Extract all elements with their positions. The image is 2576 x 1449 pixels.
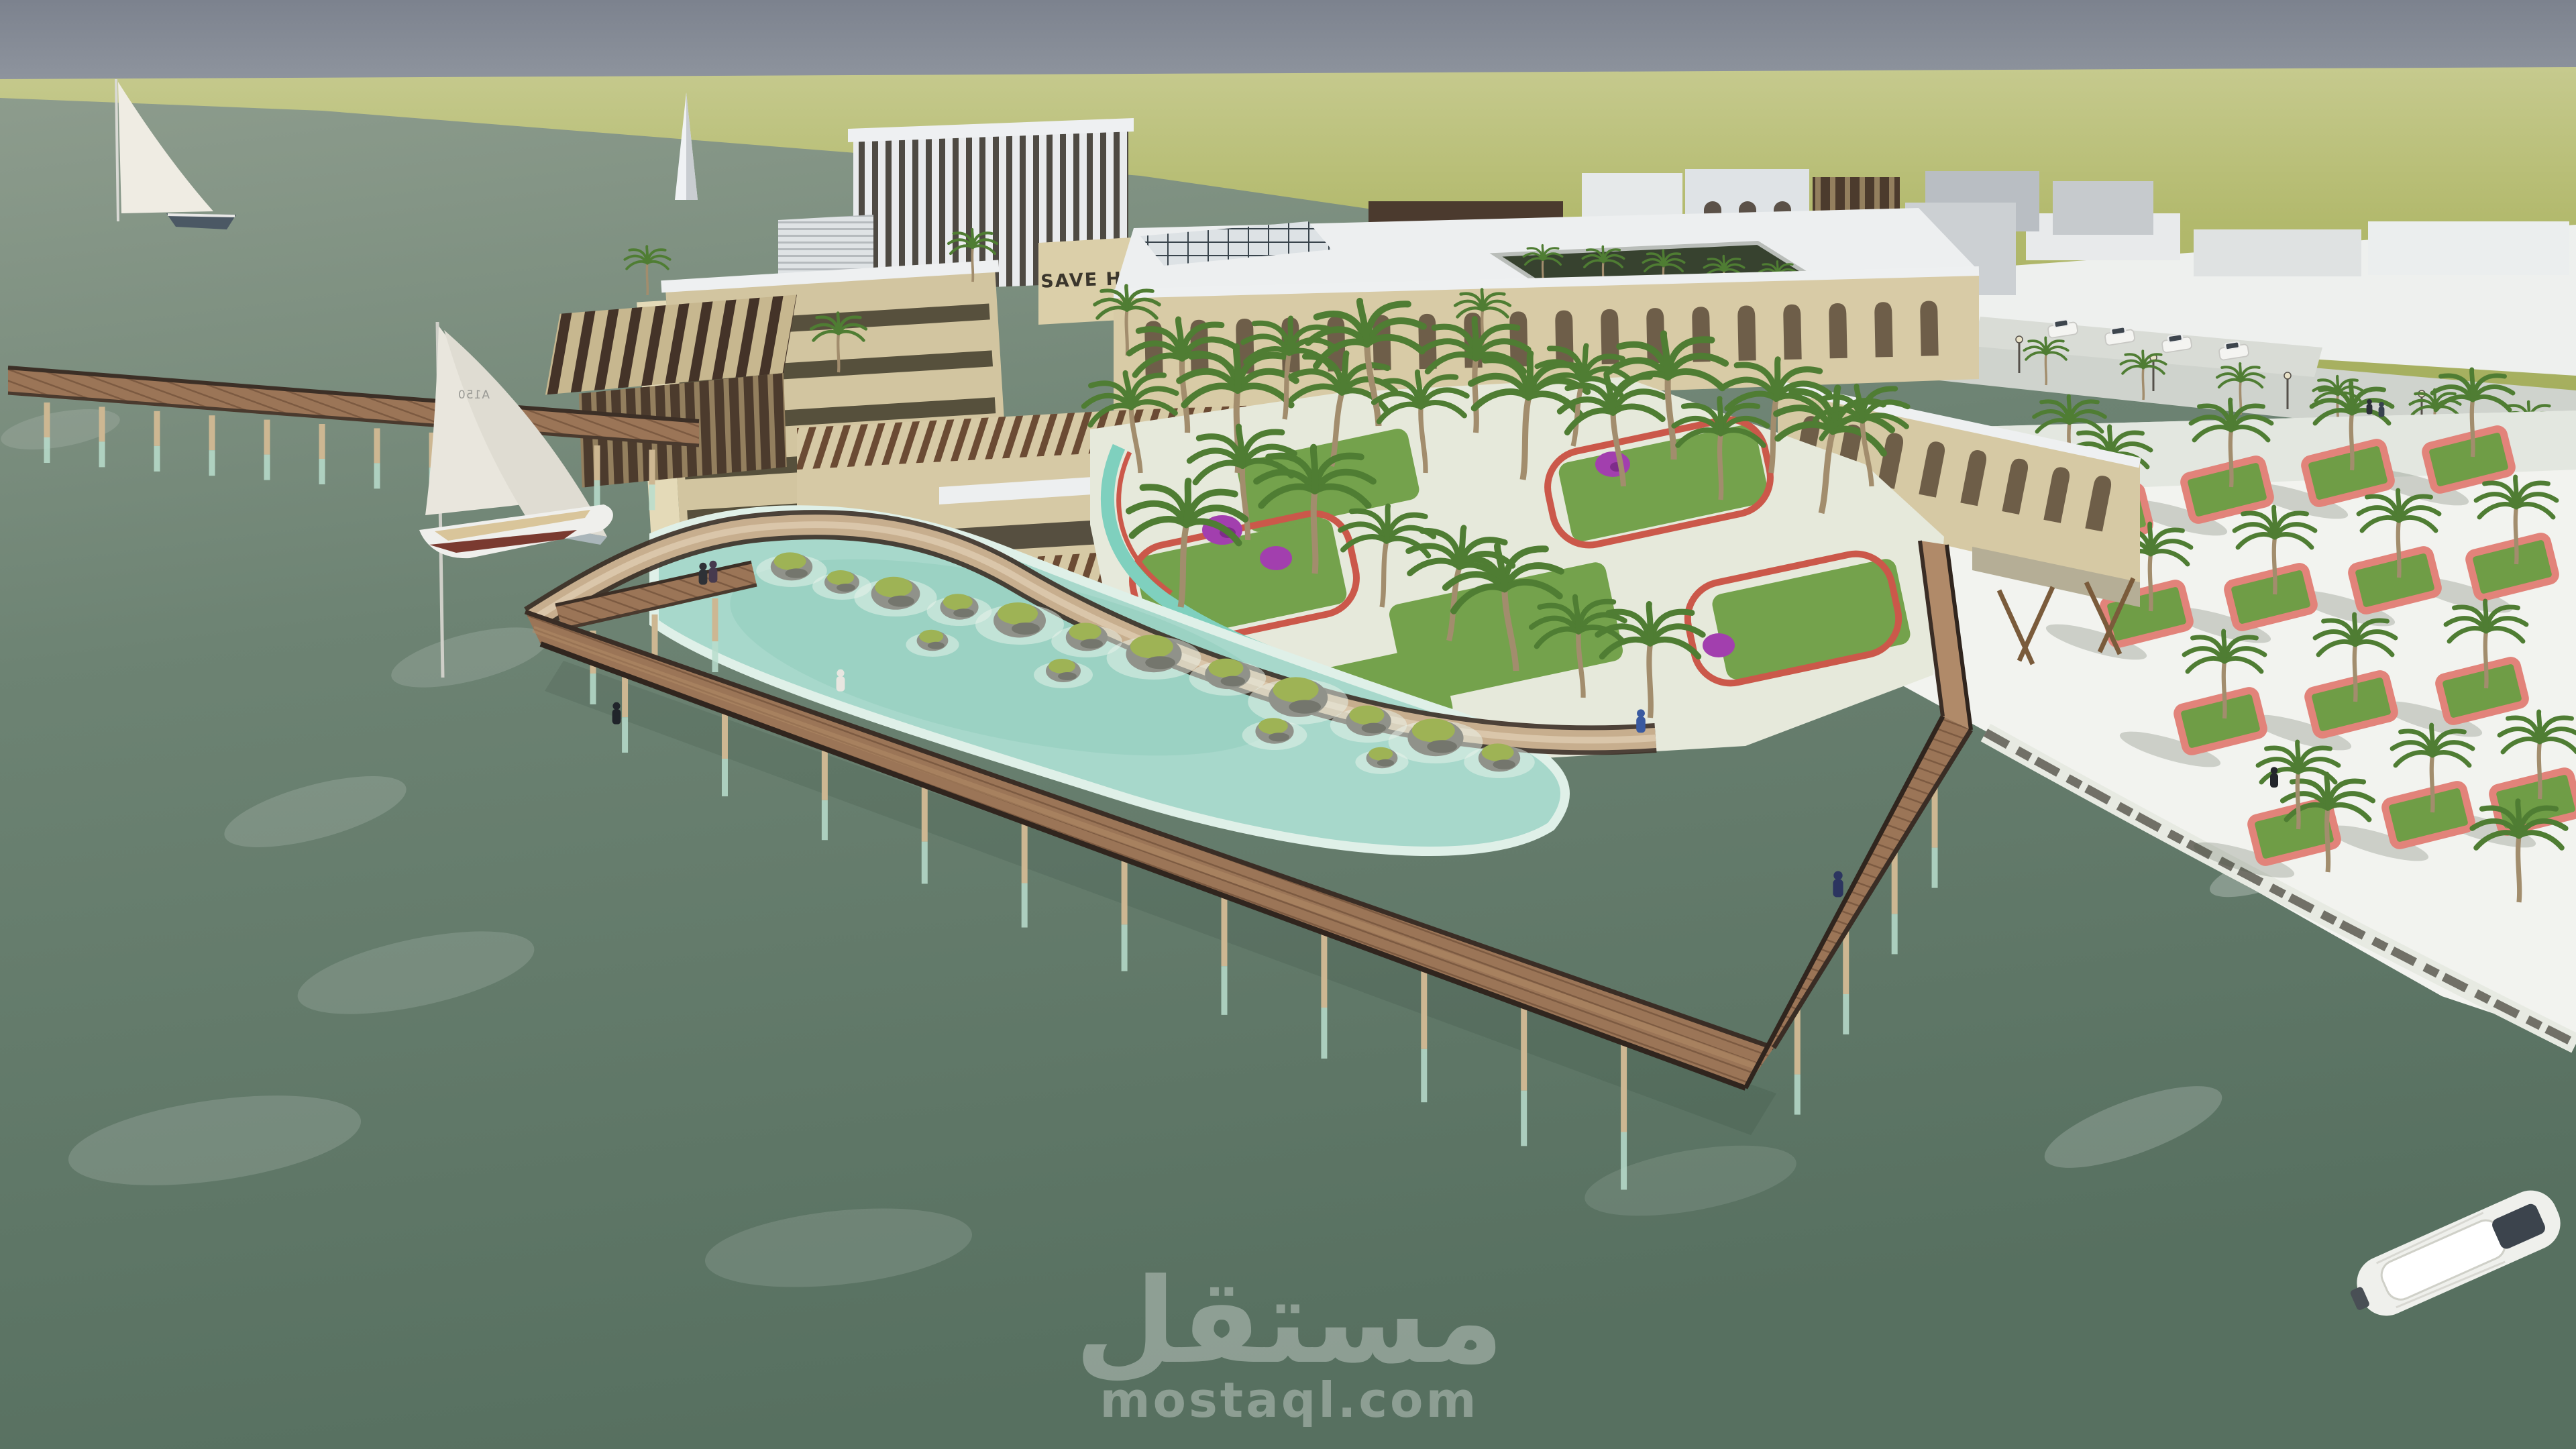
pier-post-underwater xyxy=(264,455,270,480)
pier-post xyxy=(1321,934,1327,1008)
pier-post-underwater xyxy=(209,450,215,476)
pedestrian xyxy=(2270,767,2278,788)
watermark: مستقل mostaql.com xyxy=(1075,1254,1504,1428)
render-viewport: SAVE HERITAGE xyxy=(0,0,2576,1449)
pier-post xyxy=(712,598,718,641)
pier-post-underwater xyxy=(1932,848,1938,888)
pier-post-underwater xyxy=(319,459,325,484)
pier-post-underwater xyxy=(649,484,655,510)
pier-post-underwater xyxy=(374,463,380,488)
pier-post xyxy=(319,424,325,459)
pier-post-underwater xyxy=(1221,966,1227,1015)
pier-post-underwater xyxy=(590,674,596,704)
pier-post-underwater xyxy=(99,441,105,467)
pier-post-underwater xyxy=(622,717,628,753)
pier-post xyxy=(1022,823,1028,883)
watermark-domain: mostaql.com xyxy=(1099,1372,1479,1428)
pier-post xyxy=(264,420,270,455)
pier-post-underwater xyxy=(722,759,728,796)
pier-post-underwater xyxy=(1892,914,1898,954)
pedestrian xyxy=(709,561,718,583)
pedestrian xyxy=(1636,709,1646,733)
pedestrian xyxy=(612,702,621,724)
pier-post-underwater xyxy=(1621,1132,1627,1190)
arch-window xyxy=(1555,310,1574,366)
pier-post xyxy=(1521,1007,1527,1090)
pier-post xyxy=(922,787,928,842)
gray-box-building xyxy=(2053,181,2153,235)
pier-post-underwater xyxy=(822,800,828,840)
architectural-render: SAVE HERITAGE xyxy=(0,0,2576,1449)
pier-post-underwater xyxy=(1321,1008,1327,1059)
pedestrian xyxy=(1833,871,1843,897)
pedestrian xyxy=(2379,402,2385,417)
arch-window xyxy=(1874,302,1893,358)
pier-post-underwater xyxy=(154,446,160,472)
pier-post-underwater xyxy=(1521,1091,1527,1146)
distant-building xyxy=(2194,229,2361,276)
pedestrian xyxy=(699,563,708,585)
pier-post xyxy=(649,449,655,484)
pier-post xyxy=(622,676,628,717)
arch-window xyxy=(1737,305,1756,361)
pier-post xyxy=(99,407,105,441)
pier-post-underwater xyxy=(1022,883,1028,927)
sail-number-text: A150 xyxy=(458,388,490,402)
pier-post xyxy=(652,614,658,657)
pier-post-underwater xyxy=(1794,1075,1801,1115)
pier-post xyxy=(374,428,380,463)
pier-post xyxy=(822,750,828,800)
pier-post xyxy=(1421,970,1427,1049)
arch-window xyxy=(1783,305,1802,360)
pier-post xyxy=(722,713,728,759)
pier-post xyxy=(154,411,160,446)
pier-post-underwater xyxy=(594,480,600,506)
pier-post xyxy=(1621,1044,1627,1132)
pier-post-underwater xyxy=(712,641,718,672)
pier-post xyxy=(1221,897,1227,966)
pedestrian xyxy=(837,669,845,692)
pier-post-underwater xyxy=(922,842,928,884)
pier-post xyxy=(1122,860,1128,924)
distant-building xyxy=(2368,221,2569,275)
pier-post-underwater xyxy=(44,437,50,463)
pier-post-underwater xyxy=(1421,1049,1427,1102)
pier-post xyxy=(209,415,215,450)
pier-post xyxy=(44,402,50,437)
pier-post-underwater xyxy=(1843,994,1849,1034)
arch-window xyxy=(1920,301,1939,356)
pier-post xyxy=(594,445,600,480)
pier-post-underwater xyxy=(1122,924,1128,971)
arch-window xyxy=(1829,303,1847,359)
pedestrian xyxy=(2367,399,2373,415)
watermark-arabic: مستقل xyxy=(1075,1254,1504,1390)
